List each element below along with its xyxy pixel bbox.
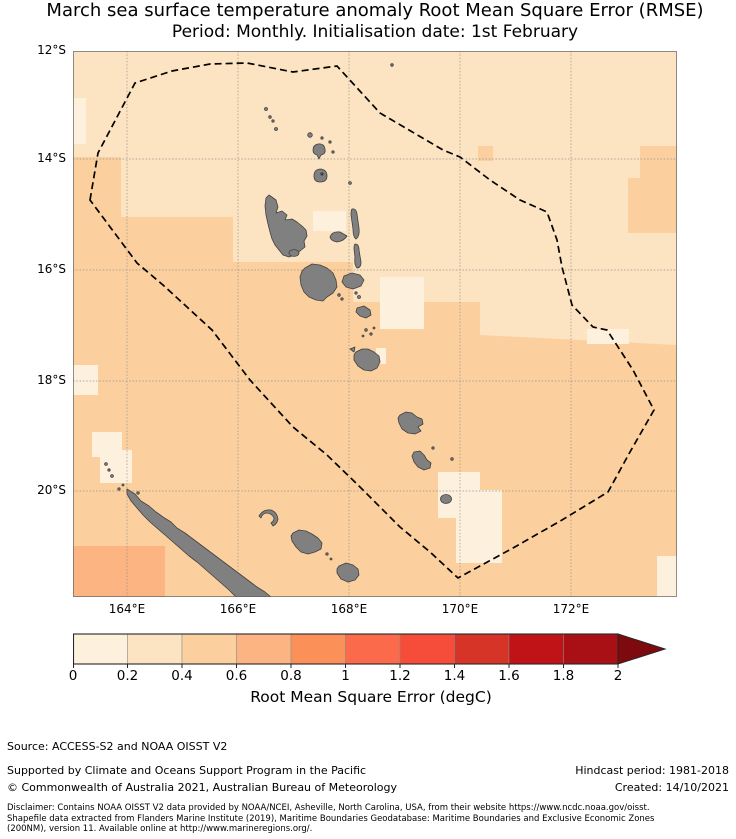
- island-speck: [391, 64, 394, 67]
- island-gaua-crater: [321, 173, 323, 175]
- island-ureparapara: [308, 133, 313, 138]
- island-speck: [330, 558, 332, 560]
- island-shepherd: [362, 335, 364, 337]
- disclaimer-line: Disclaimer: Contains NOAA OISST V2 data …: [7, 803, 654, 814]
- island-speck: [122, 484, 124, 486]
- hindcast-text: Hindcast period: 1981-2018: [575, 764, 729, 777]
- cbar-tick-2: 2: [596, 668, 640, 684]
- disclaimer-line: Shapefile data extracted from Flanders M…: [7, 814, 654, 825]
- island-aneityum: [441, 495, 452, 504]
- page-title: March sea surface temperature anomaly Ro…: [46, 0, 703, 21]
- colorbar-over-arrow: [618, 634, 665, 664]
- map-plot: [73, 51, 677, 597]
- island-speck: [137, 492, 139, 494]
- y-tick-18s: 18°S: [8, 373, 66, 387]
- disclaimer-line: (200NM), version 11. Available online at…: [7, 824, 654, 835]
- island-lopevi: [358, 296, 361, 299]
- x-tick-164e: 164°E: [97, 602, 157, 616]
- island-speck: [332, 151, 334, 153]
- island-speck: [338, 294, 341, 297]
- disclaimer-text: Disclaimer: Contains NOAA OISST V2 data …: [7, 803, 654, 835]
- island-aniwa: [432, 447, 434, 449]
- cbar-tick-1: 1: [324, 668, 368, 684]
- colorbar: [73, 633, 677, 673]
- island-shepherd: [370, 333, 372, 335]
- page-subtitle: Period: Monthly. Initialisation date: 1s…: [172, 22, 578, 42]
- island-belep: [108, 469, 110, 471]
- created-text: Created: 14/10/2021: [615, 781, 729, 794]
- cbar-tick-12: 1.2: [378, 668, 422, 684]
- copyright-text: © Commonwealth of Australia 2021, Austra…: [7, 781, 397, 794]
- colorbar-label: Root Mean Square Error (degC): [250, 688, 492, 706]
- supported-text: Supported by Climate and Oceans Support …: [7, 764, 366, 777]
- cbar-tick-18: 1.8: [542, 668, 586, 684]
- island-gaua: [314, 169, 327, 182]
- island-speck: [329, 141, 331, 143]
- cbar-tick-0: 0: [51, 668, 95, 684]
- x-tick-168e: 168°E: [319, 602, 379, 616]
- island-torres: [269, 116, 272, 119]
- island-speck: [118, 488, 120, 490]
- island-torres: [272, 120, 274, 122]
- x-tick-172e: 172°E: [541, 602, 601, 616]
- island-shepherd: [373, 327, 375, 329]
- y-tick-16s: 16°S: [8, 262, 66, 276]
- cbar-tick-04: 0.4: [160, 668, 204, 684]
- island-torres: [265, 108, 268, 111]
- x-tick-170e: 170°E: [430, 602, 490, 616]
- source-text: Source: ACCESS-S2 and NOAA OISST V2: [7, 740, 227, 753]
- island-tiga: [326, 553, 328, 555]
- y-tick-20s: 20°S: [8, 483, 66, 497]
- island-merelava: [349, 182, 352, 185]
- shading-bin4-patch: [73, 546, 165, 597]
- cbar-tick-08: 0.8: [269, 668, 313, 684]
- island-shepherd: [365, 329, 368, 332]
- shading-bin3-patch: [628, 178, 677, 233]
- island-torres: [275, 128, 278, 131]
- island-malo: [289, 250, 299, 257]
- figure-canvas: { "figure": { "title": "March sea surfac…: [0, 0, 736, 839]
- cbar-tick-02: 0.2: [106, 668, 150, 684]
- cbar-tick-14: 1.4: [433, 668, 477, 684]
- island-belep: [105, 463, 108, 466]
- y-tick-12s: 12°S: [8, 43, 66, 57]
- island-speck: [341, 298, 343, 300]
- colorbar-cells: [73, 634, 618, 664]
- island-paama: [355, 292, 357, 294]
- cbar-tick-06: 0.6: [215, 668, 259, 684]
- island-speck: [321, 137, 323, 139]
- island-belep: [111, 475, 114, 478]
- island-futuna: [451, 458, 454, 461]
- shading-bin3-patch: [640, 146, 677, 178]
- x-tick-166e: 166°E: [208, 602, 268, 616]
- y-tick-14s: 14°S: [8, 151, 66, 165]
- cbar-tick-16: 1.6: [487, 668, 531, 684]
